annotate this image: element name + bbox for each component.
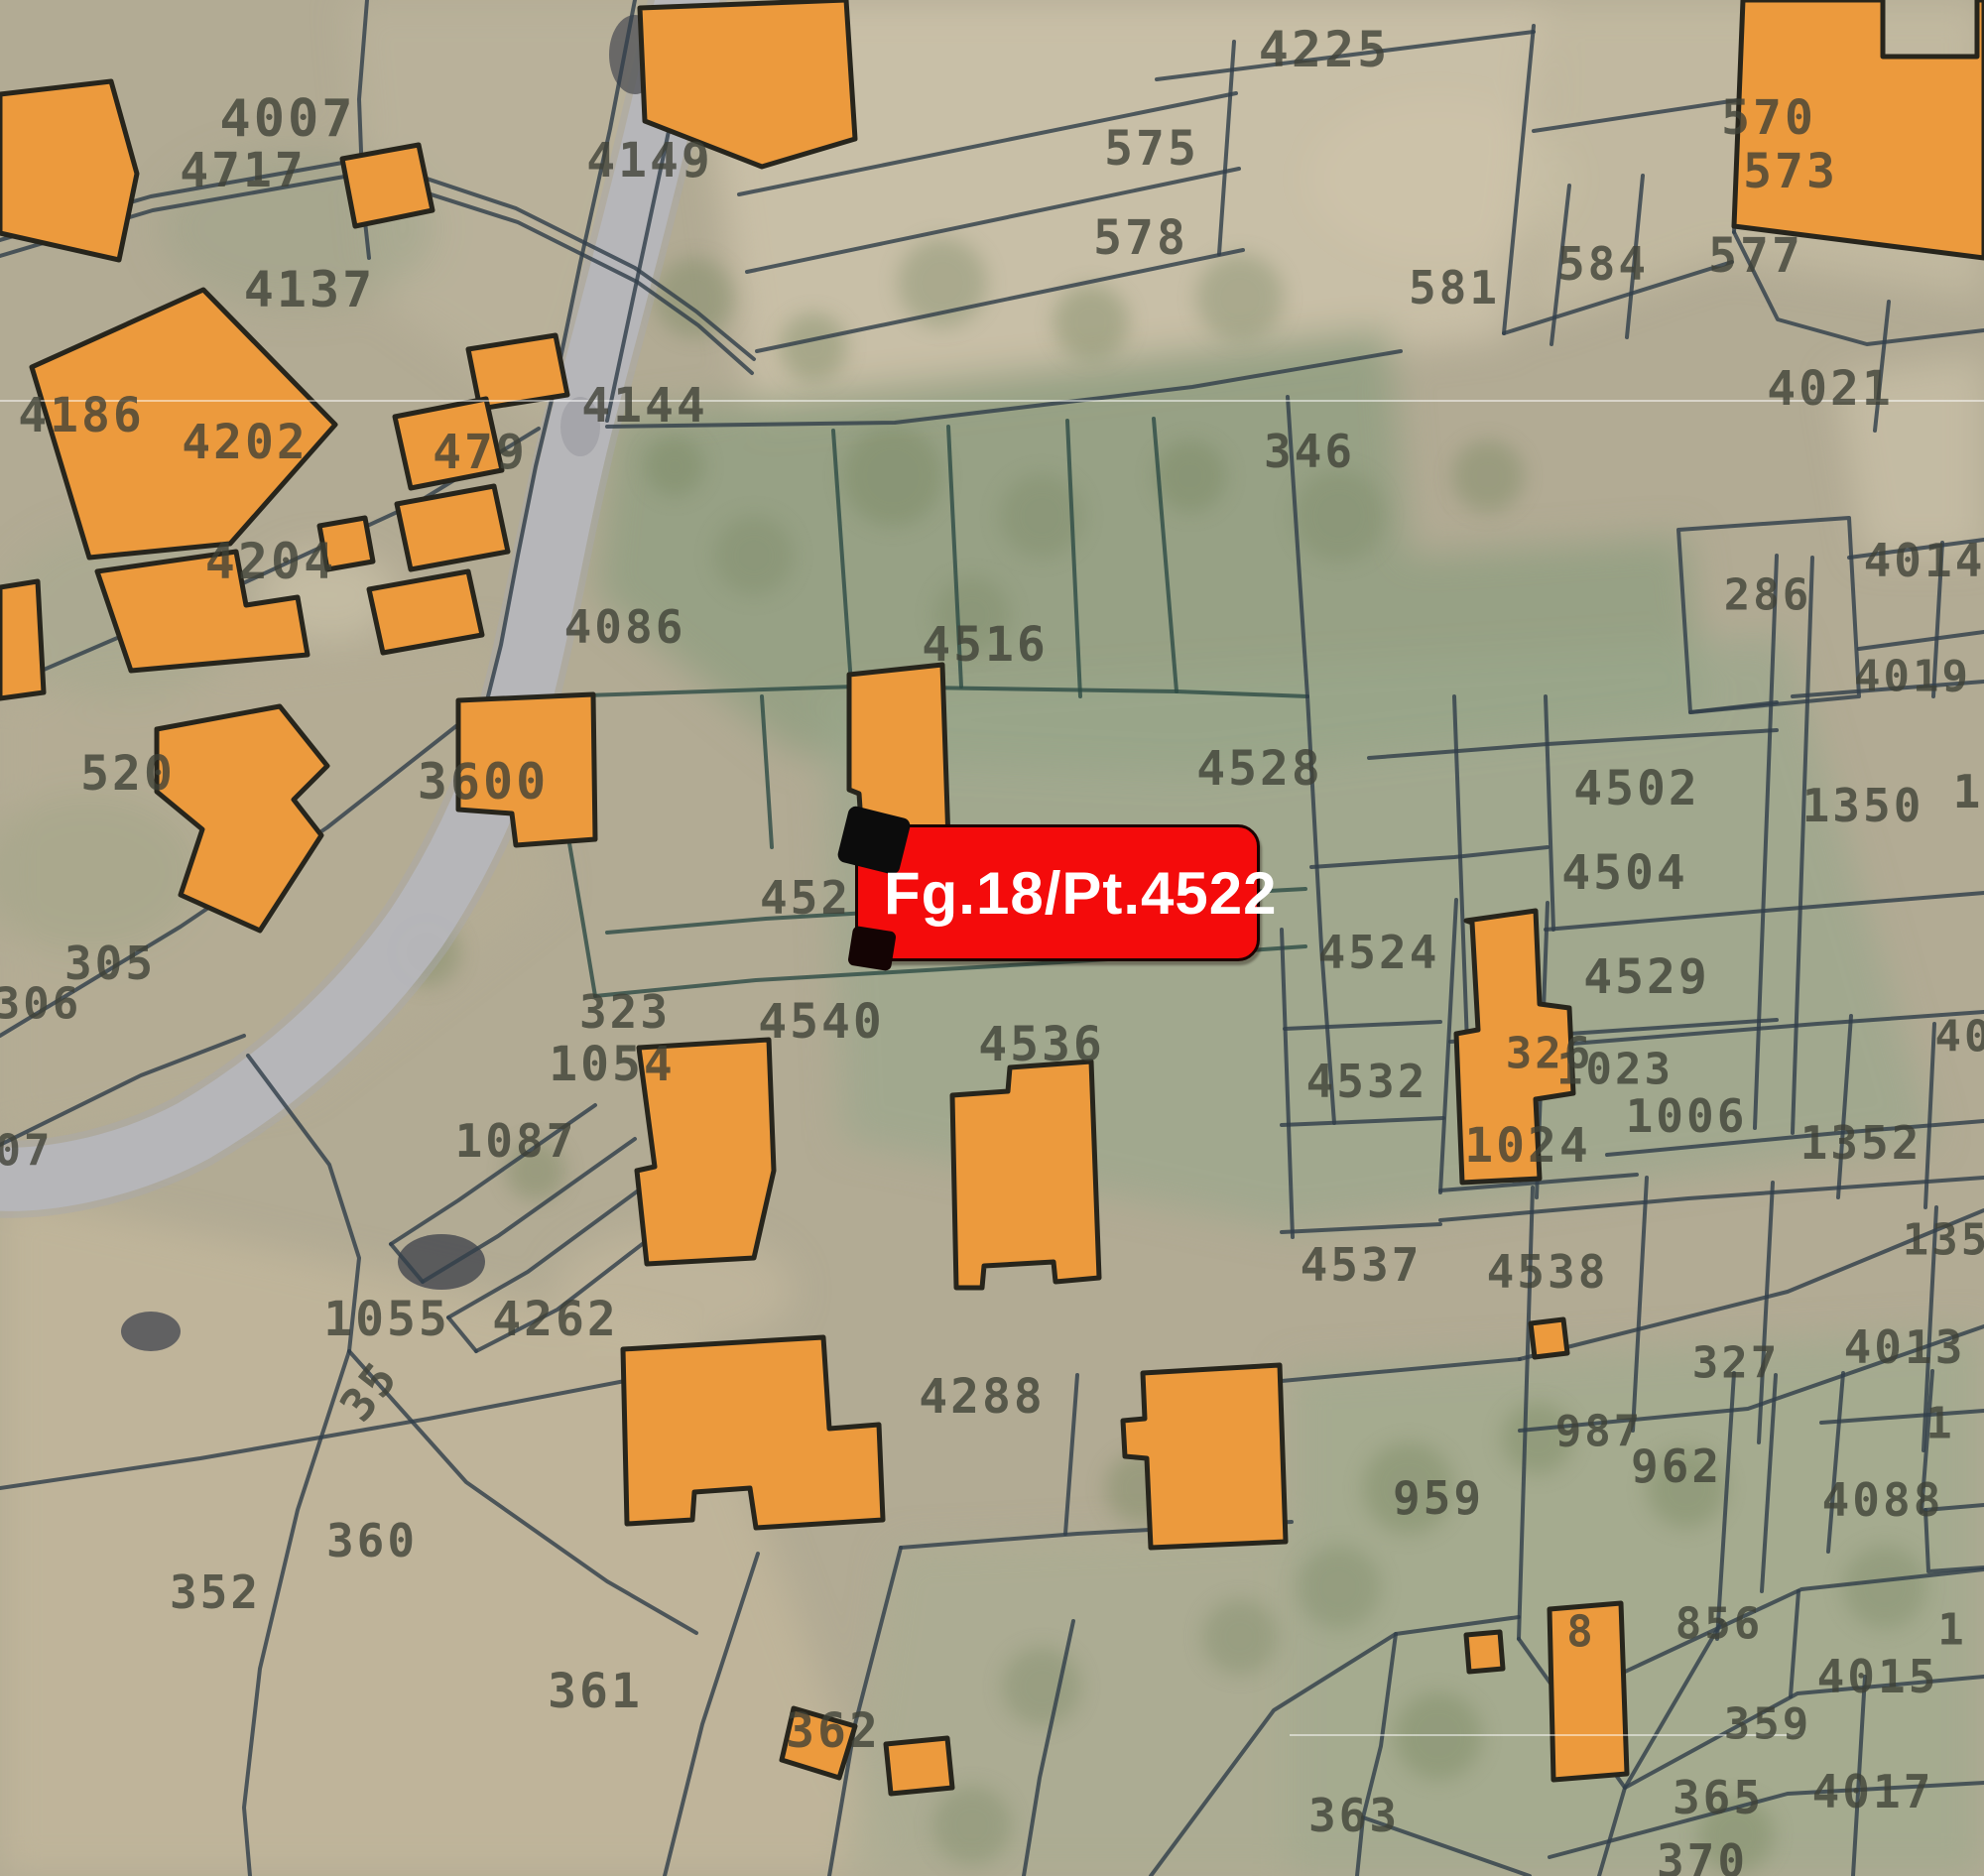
parcel-label: 4086 [564,600,686,654]
parcel-label: 4017 [1812,1765,1934,1818]
parcel-label: 306 [0,979,81,1030]
parcel-label: 1352 [1800,1116,1922,1170]
parcel-label: 1 [1937,1605,1967,1656]
parcel-label: 1006 [1626,1089,1748,1143]
selected-parcel-callout[interactable]: Fg.18/Pt.4522 [855,824,1260,961]
selected-parcel-label: Fg.18/Pt.4522 [858,859,1278,928]
parcel-label: 4502 [1573,761,1700,816]
parcel-label: 4225 [1259,21,1390,78]
cadastral-map[interactable]: 4007471741374186420247942044149414442255… [0,0,1984,1876]
parcel-label: 346 [1264,425,1355,478]
parcel-label: 575 [1104,121,1199,177]
parcel-label: 4021 [1767,361,1894,417]
parcel-label: 452 [760,871,851,925]
parcel-label: 4013 [1844,1320,1966,1374]
parcel-label: 1350 [1802,779,1924,832]
parcel-label: 4504 [1561,845,1688,901]
parcel-label: 4536 [978,1017,1105,1072]
parcel-label: 4202 [182,415,309,470]
parcel-label: 8 [1566,1607,1596,1658]
parcel-label: 4019 [1854,652,1971,702]
parcel-label: 1 [1953,765,1984,818]
parcel-label: 361 [548,1664,643,1719]
parcel-label: 4529 [1583,949,1710,1005]
parcel-label: 4014 [1864,534,1984,587]
parcel-label: 4088 [1822,1473,1944,1527]
parcel-label: 570 [1721,90,1816,146]
parcel-label: 962 [1631,1439,1722,1493]
parcel-label: 4204 [205,533,336,590]
parcel-label: 1055 [323,1292,450,1347]
parcel-label: 4532 [1306,1055,1428,1108]
parcel-label: 959 [1393,1471,1484,1525]
parcel-label: 4007 [219,89,355,149]
parcel-label: 581 [1409,261,1500,314]
parcel-label: 4288 [919,1369,1046,1425]
parcel-label: 1054 [549,1037,676,1092]
parcel-label: 4137 [244,261,375,318]
parcel-label: 360 [326,1514,418,1567]
parcel-label: 584 [1557,237,1649,291]
parcel-label: 352 [170,1565,261,1619]
parcel-label: 323 [579,985,671,1039]
parcel-label: 135 [1903,1215,1984,1266]
parcel-label: 577 [1708,228,1803,284]
parcel-label: 1 [1925,1399,1955,1449]
parcel-label: 365 [1673,1771,1764,1824]
parcel-label: 4015 [1817,1650,1939,1703]
parcel-label: 4528 [1196,741,1323,797]
parcel-label: 4537 [1301,1238,1423,1292]
parcel-label: 4144 [581,378,708,434]
parcel-label: 3600 [418,753,549,811]
parcel-label: 4186 [18,388,145,443]
parcel-label: 1023 [1556,1045,1674,1095]
parcel-label: 573 [1743,144,1838,199]
parcel-label: 4540 [758,994,885,1050]
parcel-label: 856 [1675,1599,1763,1650]
parcel-label: 286 [1724,570,1811,621]
parcel-label: 4149 [586,133,713,188]
parcel-label: 4717 [180,143,307,198]
parcel-label: 4262 [492,1292,619,1347]
parcel-label: 359 [1724,1699,1811,1750]
parcel-label: 1087 [455,1114,577,1168]
parcel-label: 4524 [1318,926,1440,979]
parcel-label: 362 [786,1703,881,1759]
parcel-label: 363 [1308,1789,1400,1842]
parcel-label: 35 [329,1350,409,1432]
parcel-label: 07 [0,1126,53,1177]
parcel-label: 1024 [1464,1118,1591,1174]
parcel-label: 578 [1093,210,1188,266]
parcel-label: 520 [80,746,176,802]
parcel-label: 40 [1935,1012,1984,1063]
parcel-label: 4516 [922,617,1049,673]
parcel-label: 4538 [1487,1245,1609,1299]
parcel-label: 327 [1692,1338,1780,1389]
parcel-label: 370 [1657,1834,1748,1876]
parcel-label: 479 [433,425,528,480]
